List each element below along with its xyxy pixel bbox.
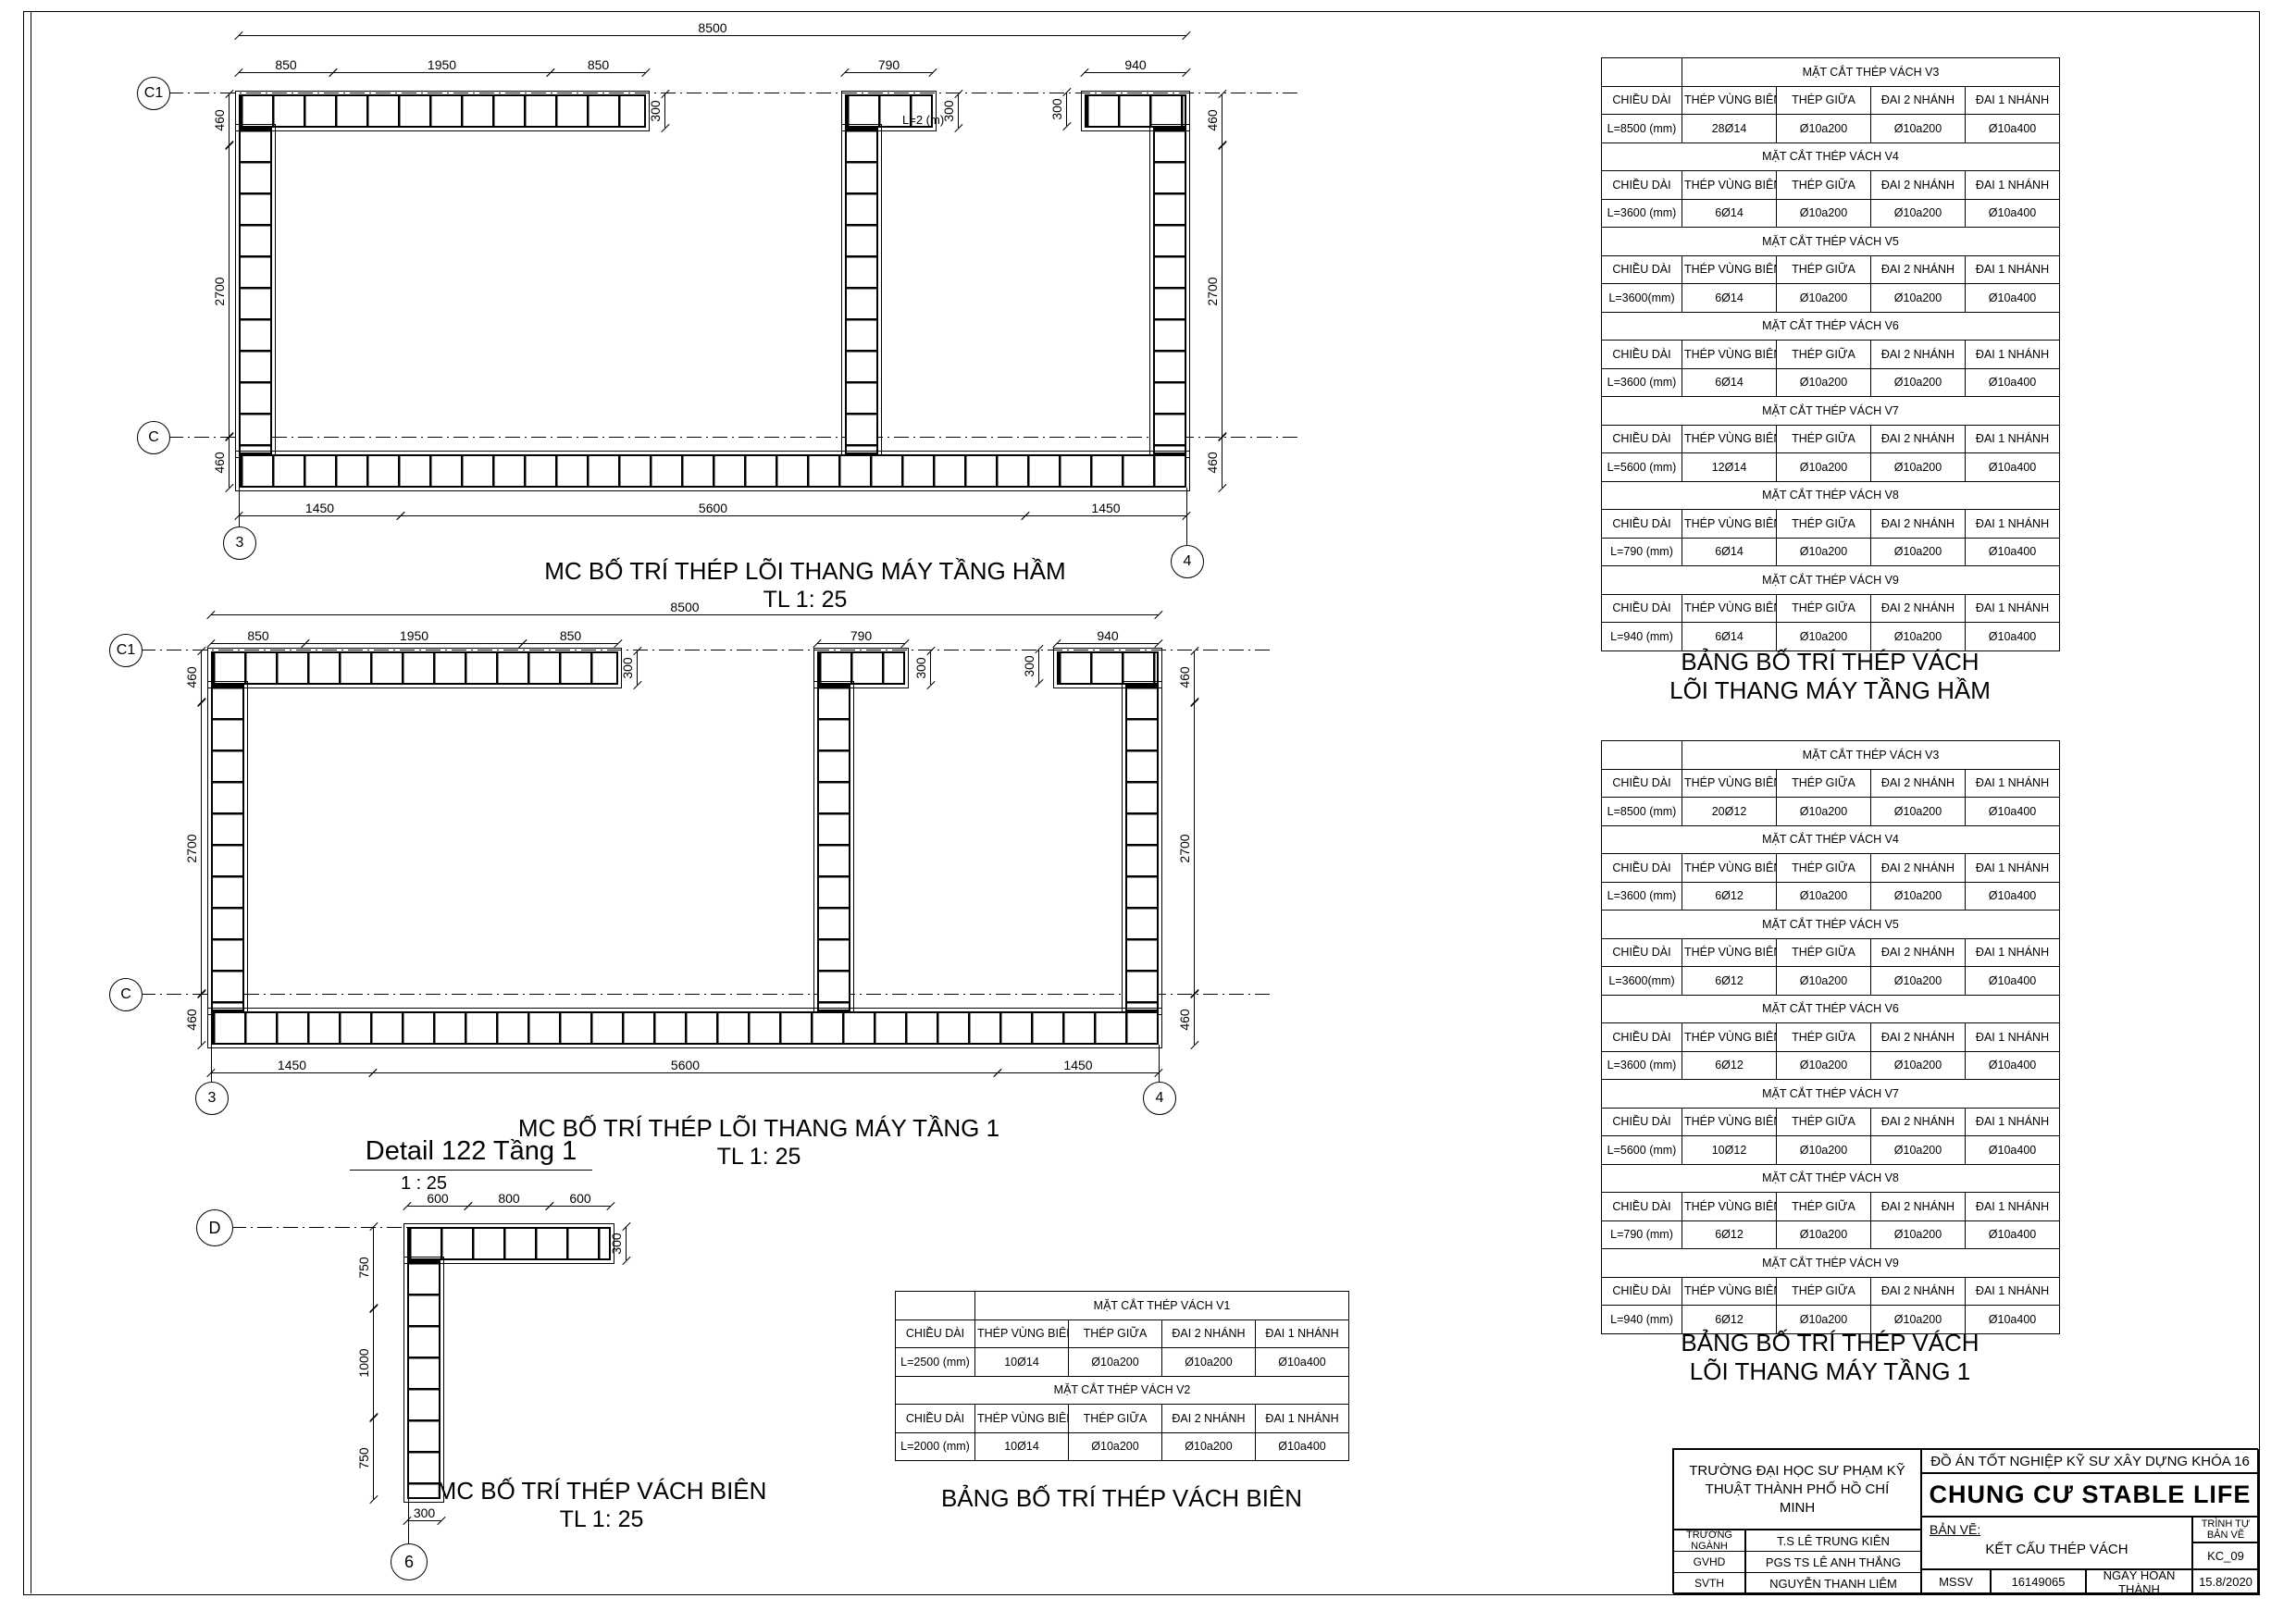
dimension-label: 300 xyxy=(649,100,662,121)
table-column-header: THÉP GIỮA xyxy=(1777,854,1871,883)
table-column-header: CHIỀU DÀI xyxy=(1602,854,1682,883)
table-column-header: ĐAI 1 NHÁNH xyxy=(1966,594,2060,623)
table-cell: Ø10a400 xyxy=(1966,115,2060,143)
table-title-basement: BẢNG BỐ TRÍ THÉP VÁCH LÕI THANG MÁY TẦNG… xyxy=(1601,648,2059,705)
table-column-header: CHIỀU DÀI xyxy=(1602,255,1682,284)
dimension-label: 750 xyxy=(357,1447,370,1468)
table-cell: Ø10a200 xyxy=(1777,453,1871,482)
dimension-label: 460 xyxy=(213,452,226,473)
rebar-note: L=2 (m) xyxy=(902,113,944,127)
table-column-header: ĐAI 1 NHÁNH xyxy=(1966,510,2060,539)
table-cell xyxy=(1602,58,1682,87)
table-cell: L=5600 (mm) xyxy=(1602,1136,1682,1165)
dimension: 460 xyxy=(229,94,230,145)
dimension: 300 xyxy=(1038,650,1039,683)
table-cell: Ø10a200 xyxy=(1871,798,1966,826)
table-cell: Ø10a400 xyxy=(1966,284,2060,313)
dimension-label: 8500 xyxy=(670,601,699,613)
dimension: 1450 xyxy=(211,1072,373,1073)
dimension: 1000 xyxy=(373,1308,374,1418)
table-column-header: THÉP GIỮA xyxy=(1777,86,1871,115)
table-column-header: CHIỀU DÀI xyxy=(1602,1277,1682,1306)
table-cell: 10Ø12 xyxy=(1682,1136,1777,1165)
table-cell: Ø10a200 xyxy=(1871,284,1966,313)
dimension: 300 xyxy=(958,94,959,128)
dimension: 2700 xyxy=(229,145,230,437)
table-column-header: ĐAI 2 NHÁNH xyxy=(1871,594,1966,623)
table-title-line: LÕI THANG MÁY TẦNG HẦM xyxy=(1601,676,2059,705)
row-value: T.S LÊ TRUNG KIÊN xyxy=(1745,1530,1921,1552)
table-cell: Ø10a200 xyxy=(1871,453,1966,482)
dimension: 1950 xyxy=(305,643,523,644)
table-title-line: BẢNG BỐ TRÍ THÉP VÁCH BIÊN xyxy=(893,1484,1350,1513)
table-column-header: CHIỀU DÀI xyxy=(1602,86,1682,115)
dimension: 5600 xyxy=(373,1072,998,1073)
table-column-header: ĐAI 2 NHÁNH xyxy=(1871,938,1966,967)
table-section-header: MẶT CẮT THÉP VÁCH V9 xyxy=(1602,566,2060,595)
dimension: 600 xyxy=(550,1206,611,1207)
dimension: 750 xyxy=(373,1418,374,1499)
table-cell: Ø10a200 xyxy=(1777,538,1871,566)
dimension: 800 xyxy=(468,1206,550,1207)
table-column-header: ĐAI 2 NHÁNH xyxy=(1871,341,1966,369)
table-cell: Ø10a200 xyxy=(1871,1136,1966,1165)
dimension-label: 300 xyxy=(1023,655,1036,676)
dimension-label: 2700 xyxy=(1178,834,1191,862)
table-cell: 28Ø14 xyxy=(1682,115,1777,143)
table-column-header: ĐAI 2 NHÁNH xyxy=(1871,1193,1966,1221)
table-column-header: THÉP VÙNG BIÊN xyxy=(1682,255,1777,284)
dimension-label: 2700 xyxy=(1206,277,1219,305)
dimension-label: 2700 xyxy=(213,277,226,305)
table-cell: Ø10a400 xyxy=(1966,882,2060,911)
table-column-header: ĐAI 1 NHÁNH xyxy=(1966,425,2060,453)
detail-title-scale: 1 : 25 xyxy=(350,1173,498,1195)
grid-bubble-4: 4 xyxy=(1171,545,1204,578)
dimension-label: 1450 xyxy=(1063,1059,1092,1072)
grid-bubble-label: C xyxy=(148,429,159,446)
table-cell: 20Ø12 xyxy=(1682,798,1777,826)
table-cell: Ø10a200 xyxy=(1871,882,1966,911)
dimension-label: 460 xyxy=(185,1009,198,1030)
rebar-table-grid: MẶT CẮT THÉP VÁCH V1CHIỀU DÀITHÉP VÙNG B… xyxy=(895,1291,1349,1461)
table-cell: L=790 (mm) xyxy=(1602,538,1682,566)
table-cell: Ø10a200 xyxy=(1871,1220,1966,1249)
table-column-header: CHIỀU DÀI xyxy=(1602,1193,1682,1221)
table-section-header: MẶT CẮT THÉP VÁCH V7 xyxy=(1602,1080,2060,1109)
dimension-label: 460 xyxy=(185,666,198,688)
dimension-label: 300 xyxy=(610,1233,623,1254)
dimension-label: 460 xyxy=(1206,109,1219,130)
table-column-header: THÉP VÙNG BIÊN xyxy=(1682,1108,1777,1136)
table-section-header: MẶT CẮT THÉP VÁCH V2 xyxy=(896,1376,1349,1405)
row-label: GVHD xyxy=(1673,1551,1745,1573)
table-column-header: THÉP VÙNG BIÊN xyxy=(975,1319,1069,1348)
dimension: 1950 xyxy=(333,72,551,73)
table-section-header: MẶT CẮT THÉP VÁCH V5 xyxy=(1602,228,2060,256)
table-cell: 6Ø12 xyxy=(1682,1051,1777,1080)
table-column-header: THÉP VÙNG BIÊN xyxy=(1682,1023,1777,1052)
table-section-header: MẶT CẮT THÉP VÁCH V4 xyxy=(1602,142,2060,171)
dimension: 850 xyxy=(239,72,333,73)
dimension-label: 5600 xyxy=(699,502,727,514)
drawing-sheet: { "colors": { "ink": "#000000", "paper":… xyxy=(0,0,2296,1623)
table-cell: Ø10a200 xyxy=(1777,882,1871,911)
grid-bubble-c1: C1 xyxy=(137,77,170,110)
caption-text: MC BỐ TRÍ THÉP LÕI THANG MÁY TẦNG HẦM xyxy=(518,557,1092,586)
wall-segment xyxy=(211,651,618,685)
table-cell: 10Ø14 xyxy=(975,1348,1069,1377)
table-column-header: ĐAI 1 NHÁNH xyxy=(1966,854,2060,883)
table-cell: Ø10a200 xyxy=(1871,1051,1966,1080)
drawing-caption-detail: MC BỐ TRÍ THÉP VÁCH BIÊN TL 1: 25 xyxy=(416,1477,787,1534)
grid-line-6 xyxy=(408,1499,409,1543)
grid-line-d xyxy=(231,1227,407,1228)
dimension-label: 460 xyxy=(1178,1009,1191,1030)
table-cell: 6Ø12 xyxy=(1682,1220,1777,1249)
table-column-header: ĐAI 1 NHÁNH xyxy=(1966,769,2060,798)
dimension: 790 xyxy=(845,72,933,73)
rebar-table-grid: MẶT CẮT THÉP VÁCH V3CHIỀU DÀITHÉP VÙNG B… xyxy=(1601,740,2060,1334)
table-cell: L=3600 (mm) xyxy=(1602,882,1682,911)
table-column-header: THÉP GIỮA xyxy=(1777,171,1871,200)
table-title-floor1: BẢNG BỐ TRÍ THÉP VÁCH LÕI THANG MÁY TẦNG… xyxy=(1601,1329,2059,1386)
dimension: 2700 xyxy=(1222,145,1222,437)
grid-line-c xyxy=(141,994,1270,995)
grid-line-c xyxy=(168,437,1297,438)
table-column-header: ĐAI 2 NHÁNH xyxy=(1871,1277,1966,1306)
grid-bubble-label: 3 xyxy=(236,535,244,551)
table-column-header: ĐAI 1 NHÁNH xyxy=(1966,938,2060,967)
table-cell: Ø10a200 xyxy=(1777,1220,1871,1249)
table-column-header: ĐAI 1 NHÁNH xyxy=(1966,1108,2060,1136)
dimension: 1450 xyxy=(239,515,401,516)
table-cell: L=3600(mm) xyxy=(1602,284,1682,313)
caption-scale: TL 1: 25 xyxy=(416,1505,787,1534)
table-section-header: MẶT CẮT THÉP VÁCH V8 xyxy=(1602,481,2060,510)
dimension-label: 8500 xyxy=(698,21,726,34)
date-value: 15.8/2020 xyxy=(2192,1569,2259,1594)
sheet-margin-line xyxy=(31,11,31,1593)
table-cell: L=8500 (mm) xyxy=(1602,798,1682,826)
table-column-header: THÉP VÙNG BIÊN xyxy=(1682,1277,1777,1306)
rebar-table-edge: MẶT CẮT THÉP VÁCH V1CHIỀU DÀITHÉP VÙNG B… xyxy=(895,1291,1349,1461)
dimension-label: 460 xyxy=(213,109,226,130)
dimension: 850 xyxy=(211,643,305,644)
table-column-header: CHIỀU DÀI xyxy=(1602,510,1682,539)
date-label: NGÀY HOÀN THÀNH xyxy=(2086,1569,2192,1594)
wall-segment xyxy=(817,651,905,685)
table-cell: L=2000 (mm) xyxy=(896,1432,975,1461)
dimension-label: 1950 xyxy=(400,629,428,642)
table-cell: Ø10a400 xyxy=(1966,623,2060,651)
grid-line-c1 xyxy=(168,93,1297,93)
dimension: 600 xyxy=(407,1206,468,1207)
table-cell: L=3600 (mm) xyxy=(1602,368,1682,397)
dimension-label: 460 xyxy=(1178,666,1191,688)
dimension-label: 2700 xyxy=(185,834,198,862)
dimension: 8500 xyxy=(239,35,1186,36)
dimension-label: 750 xyxy=(357,1257,370,1278)
table-title-line: BẢNG BỐ TRÍ THÉP VÁCH xyxy=(1601,1329,2059,1357)
table-cell xyxy=(896,1292,975,1320)
table-section-header: MẶT CẮT THÉP VÁCH V1 xyxy=(975,1292,1349,1320)
table-column-header: CHIỀU DÀI xyxy=(1602,1023,1682,1052)
drawing-caption-basement: MC BỐ TRÍ THÉP LÕI THANG MÁY TẦNG HẦM TL… xyxy=(518,557,1092,614)
row-label: SVTH xyxy=(1673,1572,1745,1594)
table-cell: Ø10a400 xyxy=(1966,538,2060,566)
table-cell: L=790 (mm) xyxy=(1602,1220,1682,1249)
table-column-header: CHIỀU DÀI xyxy=(1602,425,1682,453)
table-cell: Ø10a200 xyxy=(1871,538,1966,566)
table-column-header: CHIỀU DÀI xyxy=(1602,938,1682,967)
table-column-header: THÉP GIỮA xyxy=(1777,1023,1871,1052)
table-column-header: THÉP VÙNG BIÊN xyxy=(1682,171,1777,200)
dimension-label: 460 xyxy=(1206,452,1219,473)
dimension-label: 1950 xyxy=(428,58,456,71)
table-column-header: THÉP GIỮA xyxy=(1777,1277,1871,1306)
drawing-name-cell: BẢN VẼ: KẾT CẤU THÉP VÁCH xyxy=(1921,1517,2192,1569)
grid-bubble-3: 3 xyxy=(195,1082,229,1115)
table-cell: Ø10a200 xyxy=(1162,1432,1256,1461)
dimension: 300 xyxy=(930,651,931,685)
dimension: 2700 xyxy=(201,702,202,994)
dimension: 5600 xyxy=(401,515,1025,516)
table-cell: Ø10a200 xyxy=(1871,368,1966,397)
dimension-label: 5600 xyxy=(671,1059,700,1072)
table-cell: 10Ø14 xyxy=(975,1432,1069,1461)
wall-segment xyxy=(239,454,1186,488)
table-cell: L=2500 (mm) xyxy=(896,1348,975,1377)
wall-segment xyxy=(1125,685,1159,1011)
table-section-header: MẶT CẮT THÉP VÁCH V5 xyxy=(1602,911,2060,939)
table-cell: Ø10a200 xyxy=(1777,115,1871,143)
table-cell: Ø10a200 xyxy=(1777,1051,1871,1080)
table-cell: Ø10a400 xyxy=(1966,1136,2060,1165)
wall-segment xyxy=(239,128,272,454)
dimension-label: 800 xyxy=(498,1192,519,1205)
dimension: 1450 xyxy=(1025,515,1186,516)
mssv-value: 16149065 xyxy=(1991,1569,2086,1594)
table-section-header: MẶT CẮT THÉP VÁCH V3 xyxy=(1682,741,2060,770)
table-cell: Ø10a200 xyxy=(1871,967,1966,996)
table-cell: Ø10a200 xyxy=(1777,284,1871,313)
table-column-header: CHIỀU DÀI xyxy=(896,1319,975,1348)
table-column-header: THÉP VÙNG BIÊN xyxy=(1682,1193,1777,1221)
row-value: NGUYỄN THANH LIÊM xyxy=(1745,1572,1921,1594)
table-column-header: THÉP GIỮA xyxy=(1777,1108,1871,1136)
table-cell: L=3600(mm) xyxy=(1602,967,1682,996)
table-cell: Ø10a200 xyxy=(1069,1348,1162,1377)
table-cell: Ø10a200 xyxy=(1777,368,1871,397)
table-column-header: CHIỀU DÀI xyxy=(1602,594,1682,623)
table-cell: Ø10a200 xyxy=(1777,623,1871,651)
dimension-label: 600 xyxy=(427,1192,448,1205)
table-column-header: ĐAI 2 NHÁNH xyxy=(1871,255,1966,284)
table-cell: 6Ø14 xyxy=(1682,538,1777,566)
dimension: 940 xyxy=(1085,72,1186,73)
dimension: 750 xyxy=(373,1227,374,1308)
dimension-label: 600 xyxy=(569,1192,590,1205)
table-column-header: THÉP GIỮA xyxy=(1777,425,1871,453)
dimension-label: 1450 xyxy=(1091,502,1120,514)
table-cell: 12Ø14 xyxy=(1682,453,1777,482)
table-cell: Ø10a200 xyxy=(1162,1348,1256,1377)
table-column-header: ĐAI 2 NHÁNH xyxy=(1871,1108,1966,1136)
table-column-header: THÉP GIỮA xyxy=(1777,510,1871,539)
table-column-header: ĐAI 1 NHÁNH xyxy=(1966,341,2060,369)
dimension: 940 xyxy=(1057,643,1159,644)
wall-segment xyxy=(239,94,646,128)
wall-segment xyxy=(407,1227,611,1260)
rebar-table-basement: MẶT CẮT THÉP VÁCH V3CHIỀU DÀITHÉP VÙNG B… xyxy=(1601,57,2060,651)
caption-scale: TL 1: 25 xyxy=(518,586,1092,614)
dimension-label: 300 xyxy=(621,657,634,678)
project-name: CHUNG CƯ STABLE LIFE xyxy=(1921,1473,2259,1517)
grid-bubble-label: 3 xyxy=(208,1090,217,1107)
table-cell: L=940 (mm) xyxy=(1602,623,1682,651)
table-cell: Ø10a400 xyxy=(1966,1220,2060,1249)
dimension: 1450 xyxy=(998,1072,1159,1073)
dimension: 460 xyxy=(201,651,202,702)
table-column-header: ĐAI 1 NHÁNH xyxy=(1966,255,2060,284)
table-column-header: ĐAI 1 NHÁNH xyxy=(1966,1277,2060,1306)
dimension: 460 xyxy=(229,437,230,488)
table-cell: Ø10a200 xyxy=(1069,1432,1162,1461)
table-column-header: THÉP GIỮA xyxy=(1069,1319,1162,1348)
dimension: 460 xyxy=(1194,994,1195,1045)
table-column-header: ĐAI 2 NHÁNH xyxy=(1871,510,1966,539)
table-column-header: ĐAI 2 NHÁNH xyxy=(1871,854,1966,883)
wall-segment xyxy=(1057,651,1159,685)
table-title-line: BẢNG BỐ TRÍ THÉP VÁCH xyxy=(1601,648,2059,676)
table-column-header: THÉP GIỮA xyxy=(1777,938,1871,967)
table-column-header: THÉP GIỮA xyxy=(1777,341,1871,369)
table-cell: L=5600 (mm) xyxy=(1602,453,1682,482)
dimension: 460 xyxy=(1222,94,1222,145)
wall-segment xyxy=(845,128,878,454)
table-column-header: ĐAI 2 NHÁNH xyxy=(1871,171,1966,200)
table-cell: Ø10a400 xyxy=(1966,1051,2060,1080)
grid-bubble-c: C xyxy=(137,421,170,454)
table-column-header: ĐAI 2 NHÁNH xyxy=(1162,1405,1256,1433)
table-column-header: THÉP VÙNG BIÊN xyxy=(975,1405,1069,1433)
table-column-header: THÉP GIỮA xyxy=(1777,769,1871,798)
dimension-label: 940 xyxy=(1097,629,1118,642)
table-cell: 6Ø12 xyxy=(1682,882,1777,911)
table-column-header: THÉP VÙNG BIÊN xyxy=(1682,86,1777,115)
grid-bubble-6: 6 xyxy=(391,1543,428,1580)
table-cell: Ø10a200 xyxy=(1777,199,1871,228)
dimension-label: 1450 xyxy=(305,502,334,514)
dimension-label: 300 xyxy=(1050,98,1063,119)
table-cell: Ø10a400 xyxy=(1966,967,2060,996)
table-section-header: MẶT CẮT THÉP VÁCH V6 xyxy=(1602,312,2060,341)
table-column-header: THÉP GIỮA xyxy=(1777,255,1871,284)
table-column-header: THÉP VÙNG BIÊN xyxy=(1682,594,1777,623)
dimension: 850 xyxy=(551,72,646,73)
table-column-header: CHIỀU DÀI xyxy=(1602,341,1682,369)
table-section-header: MẶT CẮT THÉP VÁCH V8 xyxy=(1602,1164,2060,1193)
wall-segment xyxy=(211,685,244,1011)
dimension: 300 xyxy=(664,94,665,128)
grid-line-c1 xyxy=(141,650,1270,650)
wall-segment xyxy=(407,1260,441,1499)
dimension-label: 850 xyxy=(560,629,581,642)
table-cell: L=3600 (mm) xyxy=(1602,1051,1682,1080)
table-column-header: THÉP VÙNG BIÊN xyxy=(1682,854,1777,883)
detail-title: Detail 122 Tầng 1 xyxy=(350,1136,592,1171)
rebar-table-grid: MẶT CẮT THÉP VÁCH V3CHIỀU DÀITHÉP VÙNG B… xyxy=(1601,57,2060,651)
table-column-header: THÉP VÙNG BIÊN xyxy=(1682,510,1777,539)
grid-bubble-label: C1 xyxy=(144,85,163,102)
table-column-header: ĐAI 2 NHÁNH xyxy=(1871,1023,1966,1052)
table-column-header: CHIỀU DÀI xyxy=(1602,1108,1682,1136)
grid-bubble-c: C xyxy=(109,978,143,1011)
table-column-header: THÉP VÙNG BIÊN xyxy=(1682,938,1777,967)
dimension: 300 xyxy=(1066,93,1067,126)
grid-line-3 xyxy=(239,488,240,527)
table-column-header: THÉP GIỮA xyxy=(1069,1405,1162,1433)
table-cell: L=8500 (mm) xyxy=(1602,115,1682,143)
table-column-header: THÉP VÙNG BIÊN xyxy=(1682,425,1777,453)
dimension: 300 xyxy=(637,651,638,685)
table-column-header: ĐAI 2 NHÁNH xyxy=(1162,1319,1256,1348)
table-cell: Ø10a200 xyxy=(1871,115,1966,143)
dimension-label: 850 xyxy=(588,58,609,71)
table-cell: 6Ø14 xyxy=(1682,623,1777,651)
table-cell: Ø10a400 xyxy=(1256,1348,1349,1377)
table-column-header: THÉP VÙNG BIÊN xyxy=(1682,341,1777,369)
wall-segment xyxy=(817,685,850,1011)
table-cell: Ø10a400 xyxy=(1966,199,2060,228)
school-name: TRƯỜNG ĐẠI HỌC SƯ PHẠM KỸ THUẬT THÀNH PH… xyxy=(1673,1449,1921,1530)
table-column-header: THÉP VÙNG BIÊN xyxy=(1682,769,1777,798)
table-column-header: CHIỀU DÀI xyxy=(896,1405,975,1433)
dimension-label: 300 xyxy=(914,657,927,678)
grid-bubble-label: C xyxy=(120,986,131,1003)
table-column-header: ĐAI 2 NHÁNH xyxy=(1871,425,1966,453)
drawing-name: KẾT CẤU THÉP VÁCH xyxy=(1922,1542,2191,1557)
table-cell: 6Ø14 xyxy=(1682,368,1777,397)
drawing-label: BẢN VẼ: xyxy=(1930,1522,1980,1537)
table-column-header: ĐAI 1 NHÁNH xyxy=(1966,1023,2060,1052)
title-block: TRƯỜNG ĐẠI HỌC SƯ PHẠM KỸ THUẬT THÀNH PH… xyxy=(1672,1448,2258,1593)
dimension: 790 xyxy=(817,643,905,644)
grid-bubble-label: 4 xyxy=(1184,553,1192,570)
table-section-header: MẶT CẮT THÉP VÁCH V3 xyxy=(1682,58,2060,87)
table-title-edge: BẢNG BỐ TRÍ THÉP VÁCH BIÊN xyxy=(893,1484,1350,1513)
table-cell: Ø10a200 xyxy=(1777,967,1871,996)
dimension-label: 850 xyxy=(275,58,296,71)
table-cell: 6Ø14 xyxy=(1682,284,1777,313)
dimension-label: 790 xyxy=(878,58,900,71)
table-cell: Ø10a200 xyxy=(1777,1136,1871,1165)
wall-segment xyxy=(211,1011,1159,1045)
dimension-label: 790 xyxy=(850,629,872,642)
grid-bubble-c1: C1 xyxy=(109,634,143,667)
dimension-label: 850 xyxy=(247,629,268,642)
grid-bubble-label: 6 xyxy=(404,1553,414,1572)
dimension-label: 940 xyxy=(1124,58,1146,71)
table-title-line: LÕI THANG MÁY TẦNG 1 xyxy=(1601,1357,2059,1386)
dimension-label: 1000 xyxy=(357,1348,370,1377)
table-column-header: CHIỀU DÀI xyxy=(1602,171,1682,200)
table-cell: Ø10a200 xyxy=(1777,798,1871,826)
rebar-table-floor1: MẶT CẮT THÉP VÁCH V3CHIỀU DÀITHÉP VÙNG B… xyxy=(1601,740,2060,1334)
table-column-header: ĐAI 1 NHÁNH xyxy=(1966,171,2060,200)
table-cell: 6Ø12 xyxy=(1682,967,1777,996)
